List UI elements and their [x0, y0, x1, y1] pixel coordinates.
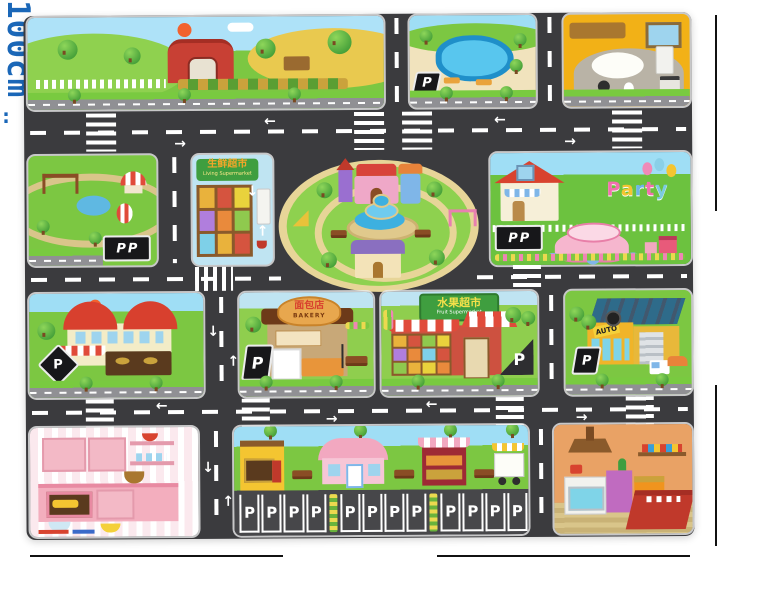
purple-cabinet: [606, 470, 632, 512]
produce-bin: [235, 211, 250, 231]
flower-strip: [345, 322, 369, 329]
crosswalk: [513, 265, 541, 291]
castle-tower: [338, 168, 352, 202]
party-text: Party: [606, 178, 668, 200]
lamp-post: [341, 344, 343, 368]
tree-icon: [500, 86, 513, 99]
tree-icon: [330, 375, 343, 388]
tree-icon: [260, 376, 273, 389]
produce-shelves: [196, 185, 252, 257]
restaurant-roof: [63, 301, 117, 329]
parking-stall: P: [362, 493, 382, 531]
fruit-bin: [408, 349, 421, 360]
boutique-roof: [318, 438, 388, 460]
tree-icon: [596, 373, 609, 386]
wall-shelf: [638, 452, 686, 456]
road-center-line: [172, 157, 177, 263]
parking-lot: P P P P P P P P P P P P: [234, 489, 528, 536]
party-letter: P: [606, 178, 621, 200]
road-center-line: [32, 407, 688, 415]
pond: [77, 196, 111, 216]
grill-shop-window: [244, 459, 274, 483]
flower-strip: [383, 310, 393, 330]
flower-divider: [329, 494, 337, 532]
road-arrow: ↑: [222, 495, 234, 509]
fruit-market-block: 水果超市 Fruit Supermarket: [381, 291, 538, 396]
dishes: [642, 444, 682, 452]
counter: [302, 358, 344, 376]
oven-window: [568, 487, 604, 511]
auto-roof: [589, 298, 685, 325]
road-arrow: ←: [264, 115, 276, 129]
crosswalk: [86, 113, 116, 151]
swing-frame: [42, 174, 78, 194]
tree-icon: [581, 315, 596, 330]
boutique-door: [346, 464, 363, 488]
swing-set: [449, 209, 477, 226]
castle-wing: [400, 174, 420, 204]
hood-pipe: [586, 427, 594, 441]
road-arrow: →: [564, 135, 576, 149]
fruit-bin: [408, 362, 421, 373]
roundabout-house-door: [373, 262, 383, 278]
food-cart-awning: [492, 443, 524, 451]
auto-parking-sign: P: [571, 347, 602, 375]
fruit-shelves: [391, 333, 451, 375]
parking-stall: P: [485, 493, 505, 531]
parking-stall: P: [407, 493, 427, 531]
height-dim-line-bottom: [715, 385, 717, 546]
width-dim-line-right: [437, 555, 690, 557]
parking-stall: P: [463, 493, 483, 531]
flower-divider: [430, 493, 438, 531]
road-center-line: [214, 431, 219, 531]
fresh-market-name-cn: 生鲜超市: [196, 160, 258, 171]
restaurant-roof: [123, 301, 177, 329]
tree-icon: [264, 425, 277, 438]
tree-icon: [68, 89, 81, 102]
tree-icon: [178, 88, 191, 101]
farm-block: [27, 16, 384, 110]
parking-letter: P: [513, 353, 525, 367]
party-block: Party PP: [490, 152, 691, 265]
tree-icon: [288, 87, 301, 100]
tree-icon: [150, 376, 163, 389]
party-letter: r: [635, 178, 646, 200]
parking-stall: P: [239, 494, 259, 532]
balloon-icon: [642, 162, 652, 175]
terrace-table: [143, 357, 157, 364]
castle-tower-roof: [336, 158, 354, 170]
bakery-name-cn: 面包店: [279, 301, 339, 312]
restaurant-windows: [75, 331, 163, 344]
bench: [415, 230, 431, 238]
house-window: [516, 165, 534, 181]
sidewalk: [29, 249, 103, 266]
road-arrow: →: [326, 412, 338, 426]
drawers: [96, 489, 134, 519]
parking-stall: P: [284, 494, 304, 532]
tree-icon: [440, 86, 453, 99]
fruit-bin: [437, 362, 450, 373]
range-hood: [568, 438, 612, 452]
wall-shelf: [130, 461, 174, 465]
terrace-table: [115, 357, 129, 364]
house-door: [513, 201, 525, 221]
tree-icon: [58, 40, 78, 60]
tree-icon: [89, 232, 102, 245]
pool-water: [442, 40, 508, 76]
lounger: [476, 79, 492, 85]
slide: [293, 210, 309, 226]
auto-shop-block: AUTO P: [565, 290, 692, 395]
tree-icon: [521, 311, 535, 325]
tree-icon: [354, 425, 367, 437]
fruit-bin: [394, 362, 407, 373]
road-center-line: [31, 276, 281, 282]
parking-stall: P: [507, 492, 527, 530]
picket-fence: [36, 79, 166, 89]
mixing-bowl: [101, 523, 121, 532]
tree-icon: [124, 47, 141, 64]
bench: [292, 470, 312, 479]
oven-glow: [52, 500, 78, 508]
market-door: [463, 337, 489, 379]
food-cart: [494, 453, 524, 477]
bakery-block: 面包店 BAKERY P: [239, 292, 374, 397]
road-arrow: ↓: [202, 461, 214, 475]
sidewalk: [564, 89, 690, 107]
produce-bin: [200, 211, 215, 231]
road-center-line: [477, 274, 687, 279]
road-center-line: [549, 295, 554, 391]
balloon-icon: [654, 158, 664, 171]
fresh-market-sign: 生鲜超市 Living Supermarket: [196, 159, 258, 181]
road-arrow: ←: [156, 399, 168, 413]
fruit-basket: [124, 471, 144, 483]
width-dim-line-left: [30, 555, 283, 557]
basket: [257, 241, 267, 249]
road-arrow: →: [576, 411, 588, 425]
brand-mark: [73, 530, 95, 534]
castle-wing-roof: [398, 164, 422, 174]
party-letter: y: [655, 178, 669, 200]
road-arrow: ←: [426, 398, 438, 412]
road-arrow: ↑: [227, 355, 239, 369]
crosswalk: [402, 112, 432, 150]
road-center-line: [539, 429, 544, 529]
tree-icon: [327, 30, 351, 54]
fridge: [656, 46, 674, 74]
tree-icon: [492, 374, 505, 387]
towed-car: [667, 356, 687, 366]
balloon-icon: [666, 164, 676, 177]
height-dim-line-top: [715, 15, 717, 211]
crosswalk: [496, 397, 524, 425]
snack-shelf: [426, 469, 462, 479]
bakery-sign: 面包店 BAKERY: [277, 296, 341, 326]
produce-bin: [217, 234, 232, 254]
parking-stall: P: [340, 493, 360, 531]
road-center-line: [219, 297, 224, 393]
party-letter: t: [645, 178, 655, 200]
produce-bin: [217, 188, 232, 208]
awning-left: [387, 319, 459, 331]
produce-bin: [217, 211, 232, 231]
food-cart-wheel: [512, 477, 520, 485]
plant: [618, 458, 626, 470]
carousel: [120, 171, 146, 185]
carousel-base: [124, 185, 142, 193]
palm-tree-icon: [514, 33, 527, 46]
parking-stall: P: [306, 494, 326, 532]
sun-icon: [177, 23, 191, 37]
fountain-top: [372, 194, 390, 208]
pink-kitchen-block: [30, 427, 199, 537]
play-mat: P → ← ← →: [23, 12, 694, 540]
boutique-window: [368, 464, 380, 476]
fresh-market-name-en: Living Supermarket: [196, 172, 258, 178]
tree-icon: [256, 39, 276, 59]
fruit-bin: [422, 349, 435, 360]
tree-icon: [426, 181, 442, 197]
produce-bin: [199, 188, 214, 208]
fruit-bin: [393, 349, 406, 360]
bench: [331, 230, 347, 238]
width-dim-separator: :: [0, 104, 13, 128]
boutique-window: [328, 464, 340, 476]
fresh-market-block: 生鲜超市 Living Supermarket: [192, 155, 273, 265]
food-cart-wheel: [498, 477, 506, 485]
tree-icon: [444, 425, 457, 437]
display-case: [271, 348, 301, 380]
produce-bin: [200, 234, 215, 254]
tree-icon: [429, 249, 445, 265]
grill-shop-door: [272, 460, 281, 482]
shop-street-block: P P P P P P P P P P P P: [234, 425, 529, 536]
snack-shelf: [426, 455, 462, 465]
sidewalk: [410, 90, 536, 108]
tree-icon: [80, 377, 93, 390]
crosswalk: [242, 399, 270, 427]
terrace: [105, 351, 171, 375]
bread-shelf: [275, 330, 321, 346]
park-parking-sign: PP: [103, 235, 151, 261]
bakery-name-en: BAKERY: [279, 313, 339, 320]
cooler: [256, 189, 270, 225]
parking-stall: P: [262, 494, 282, 532]
park-block: PP: [28, 155, 157, 266]
road-arrow: →: [174, 137, 186, 151]
produce-bin: [235, 234, 250, 254]
fruit-market-name-cn: 水果超市: [421, 297, 497, 309]
garden-rows: [178, 78, 348, 90]
sidewalk: [566, 377, 692, 395]
upper-cabinet: [42, 438, 86, 472]
red-bowl: [142, 433, 158, 441]
fruit-bin: [423, 362, 436, 373]
tree-icon: [37, 220, 50, 233]
restaurant-block: P: [29, 293, 204, 398]
upper-cabinet: [88, 437, 126, 471]
cart: [284, 56, 310, 70]
parking-stall: P: [440, 493, 460, 531]
parking-stall: P: [384, 493, 404, 531]
roundabout-house-roof: [351, 240, 405, 254]
road-center-line: [394, 18, 399, 106]
shelf: [569, 22, 625, 38]
wall-shelf: [130, 441, 174, 445]
house-awning: [504, 189, 540, 197]
balloon-icon: [117, 203, 133, 223]
tree-icon: [321, 252, 337, 268]
bench: [394, 470, 414, 479]
party-letter: a: [621, 178, 635, 200]
fruit-bin: [437, 349, 450, 360]
tree-icon: [505, 307, 521, 323]
tree-icon: [412, 375, 425, 388]
crosswalk: [354, 112, 384, 150]
red-pot: [570, 465, 582, 474]
flower-strip: [495, 253, 685, 261]
tree-icon: [316, 182, 332, 198]
palm-tree-icon: [510, 59, 523, 72]
road-center-line: [547, 17, 552, 105]
bench: [474, 469, 494, 478]
snack-stall-awning: [418, 437, 470, 447]
cups: [136, 453, 166, 461]
sidewalk: [28, 91, 384, 110]
crosswalk: [626, 396, 654, 424]
window: [645, 22, 681, 48]
crosswalk: [612, 110, 642, 148]
road-arrow: ←: [494, 113, 506, 127]
brand-mark: [39, 530, 69, 534]
pool-block: P: [409, 15, 536, 108]
castle-body-roof: [356, 164, 396, 176]
sidewalk: [30, 380, 204, 398]
tree-icon: [37, 322, 55, 340]
sidewalk: [382, 378, 538, 396]
tow-truck-window: [652, 362, 660, 368]
fruit-bin: [422, 336, 435, 347]
tire-icon: [605, 310, 621, 326]
crosswalk: [86, 400, 114, 428]
orange-kitchen-block: [554, 424, 693, 534]
lounger: [444, 77, 460, 83]
product-photo: P → ← ← →: [0, 0, 783, 611]
bench: [345, 356, 367, 366]
fruit-bin: [393, 336, 406, 347]
fruit-bin: [408, 336, 421, 347]
road-arrow: ↓: [207, 325, 219, 339]
tree-icon: [245, 317, 261, 333]
house: [500, 181, 558, 221]
tree-icon: [656, 373, 669, 386]
road-arrow: ↓: [246, 185, 258, 199]
kitchen-room-block: [563, 14, 690, 107]
table-dishes: [646, 496, 680, 502]
road-arrow: ↑: [257, 225, 269, 239]
party-parking-sign: PP: [495, 225, 543, 251]
fruit-bin: [437, 335, 450, 346]
tree-icon: [506, 425, 519, 436]
cloud-icon: [227, 23, 253, 32]
palm-tree-icon: [419, 30, 432, 43]
